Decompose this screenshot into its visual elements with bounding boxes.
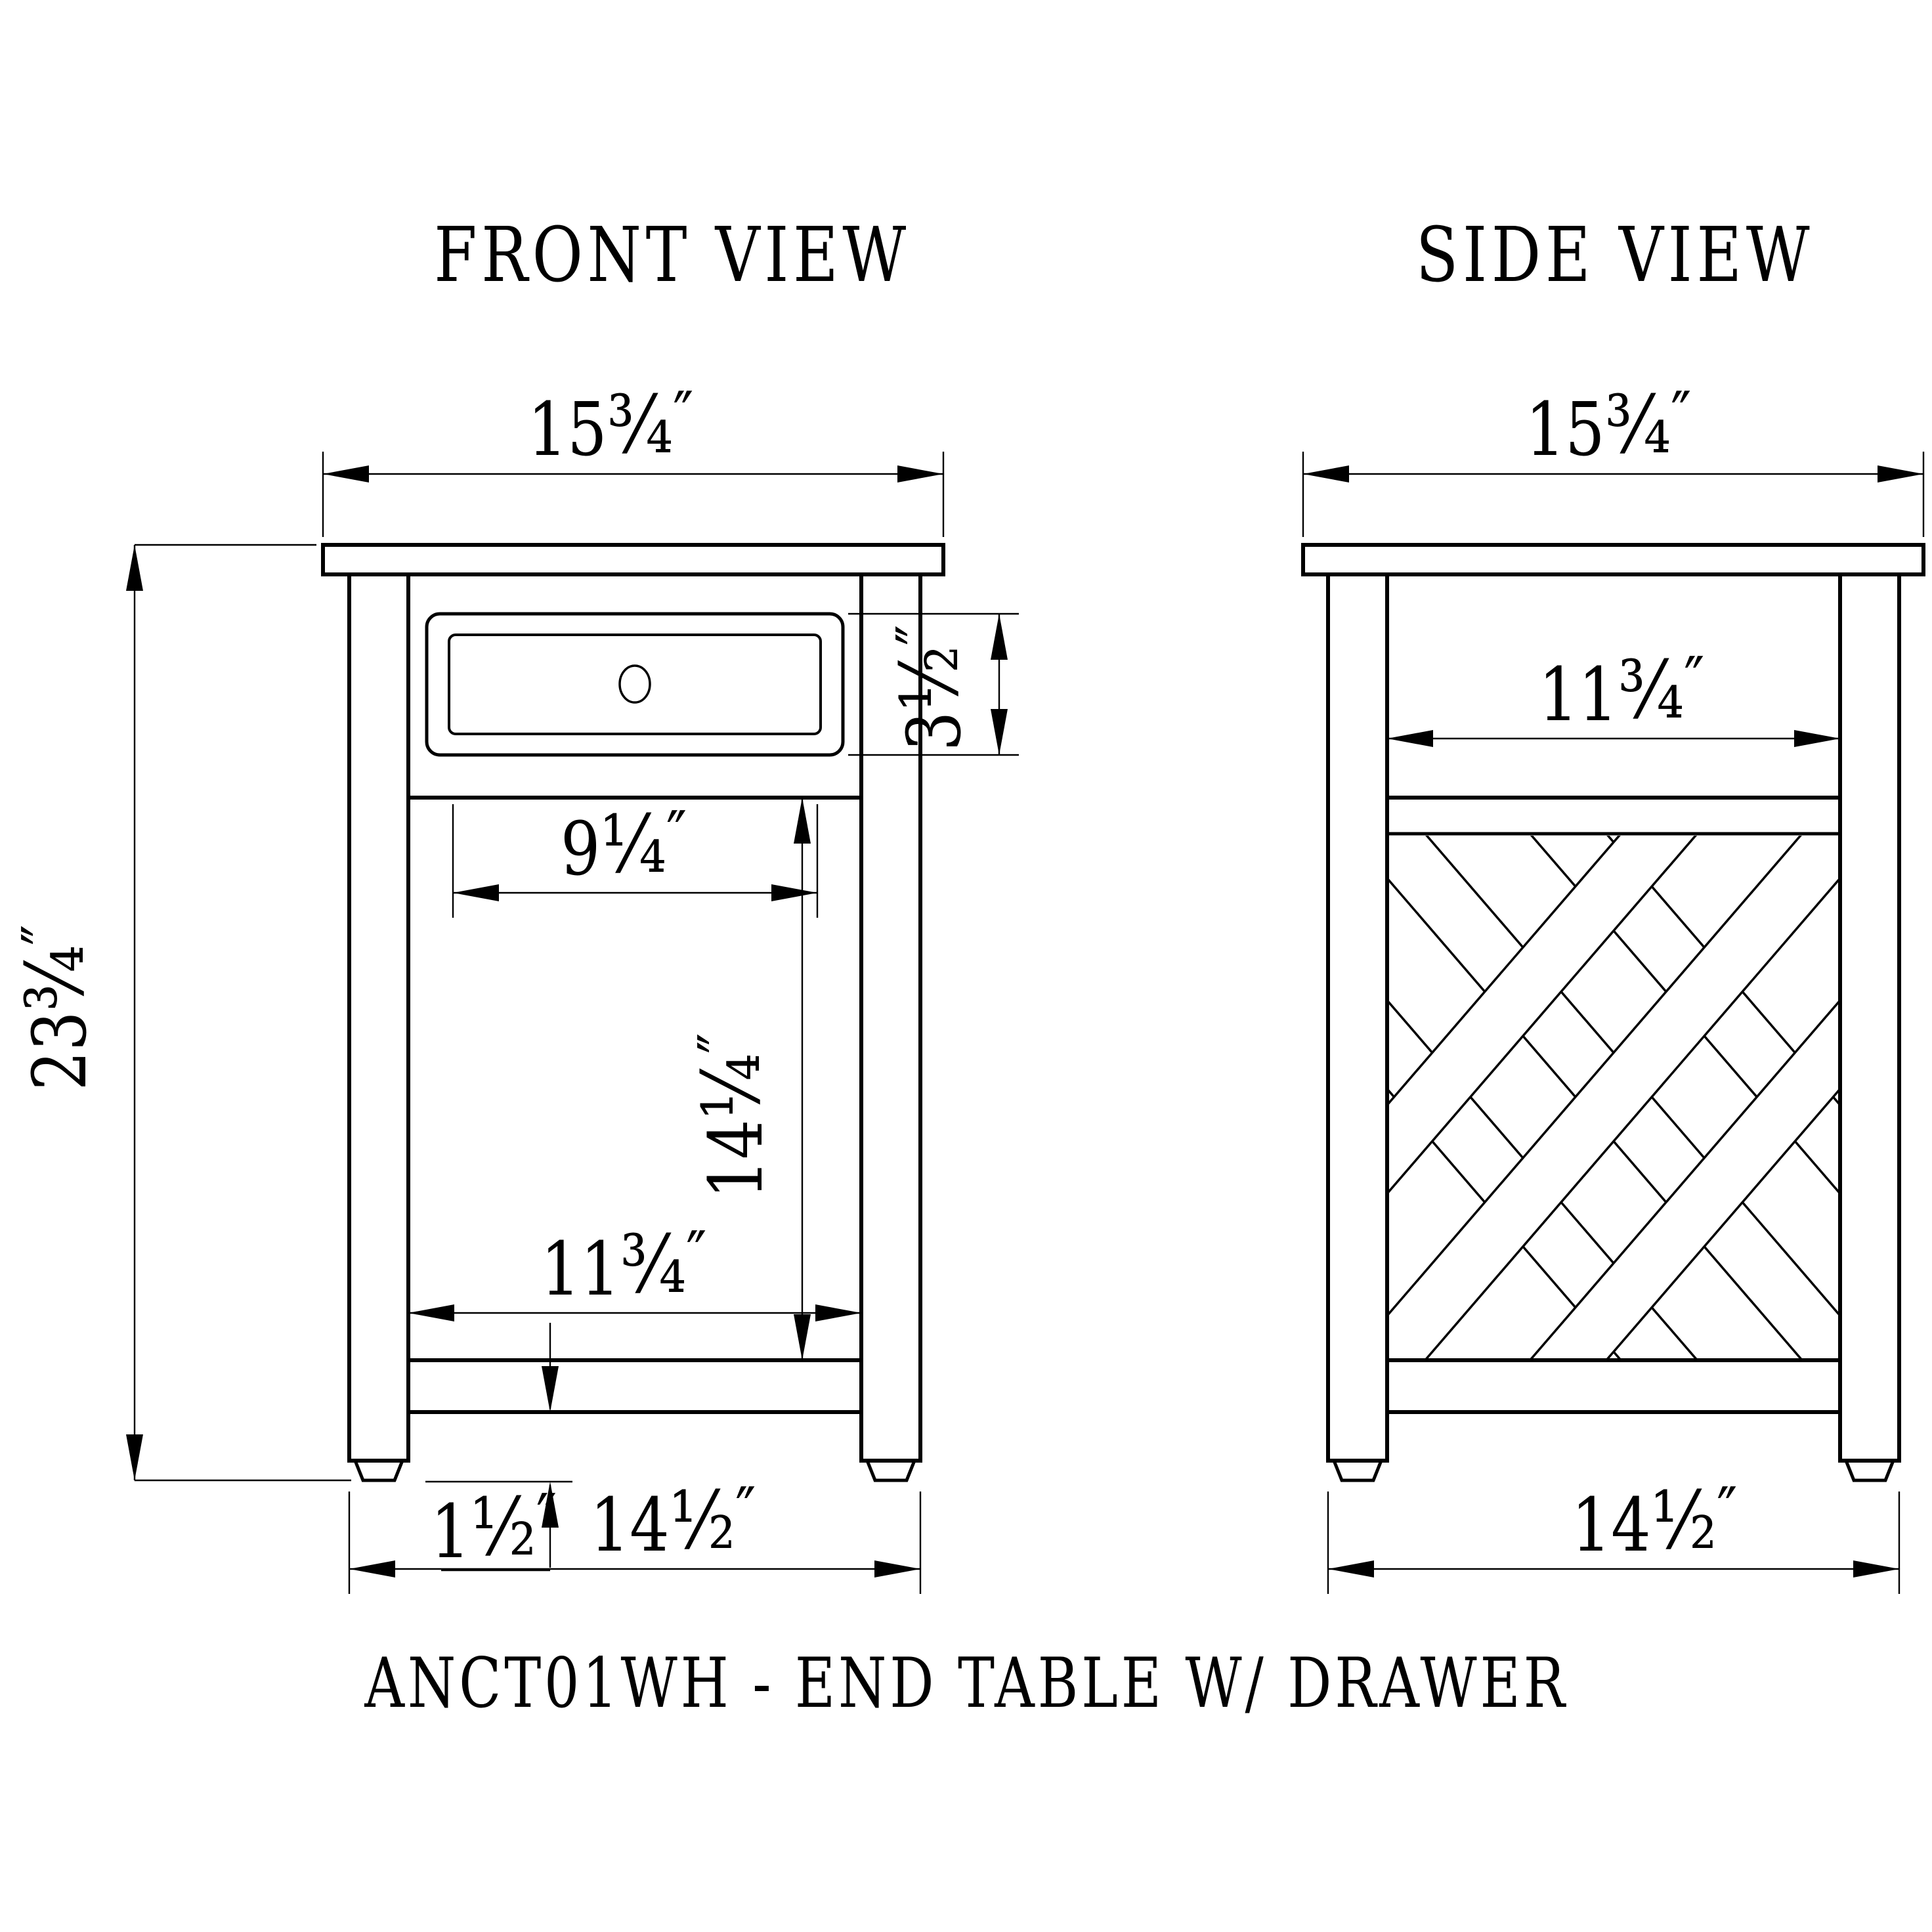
dim-front-inner-width: 11¾″ <box>408 1218 861 1321</box>
technical-drawing-page: FRONT VIEW 15¾″ 23¾″ <box>0 0 1932 1932</box>
dim-label: 14½″ <box>590 1474 756 1568</box>
dim-arrowhead <box>323 465 369 483</box>
dim-arrowhead <box>408 1304 454 1321</box>
dim-label: 14½″ <box>1572 1474 1738 1568</box>
dim-side-inner-depth: 11¾″ <box>1387 643 1840 747</box>
dim-arrowhead <box>1303 465 1349 483</box>
dim-front-overall-height: 23¾″ <box>9 545 351 1480</box>
front-left-foot <box>355 1461 402 1480</box>
dim-arrowhead <box>1853 1560 1899 1578</box>
side-left-foot <box>1334 1461 1381 1480</box>
dim-arrowhead <box>794 1314 811 1360</box>
dim-arrowhead <box>794 798 811 844</box>
dim-label: 11¾″ <box>1539 643 1705 738</box>
dim-arrowhead <box>1794 730 1840 747</box>
dim-label: 3½″ <box>883 625 977 751</box>
dim-arrowhead <box>771 884 817 901</box>
drawer-knob <box>620 666 650 702</box>
side-tabletop <box>1303 545 1923 574</box>
dim-side-top-depth: 15¾″ <box>1303 378 1923 537</box>
side-right-foot <box>1846 1461 1893 1480</box>
front-view-title: FRONT VIEW <box>434 211 911 299</box>
fretwork-panel <box>1340 785 1888 1408</box>
dim-label: 14¼″ <box>685 1033 779 1199</box>
dim-arrowhead <box>126 1434 143 1480</box>
dim-label: 15¾″ <box>528 378 694 473</box>
dim-arrowhead <box>991 614 1008 660</box>
dim-label: 1½″ <box>431 1480 557 1575</box>
dim-label: 15¾″ <box>1526 378 1692 473</box>
dim-arrowhead <box>815 1304 861 1321</box>
dim-label: 9¼″ <box>561 798 687 892</box>
dim-arrowhead <box>897 465 943 483</box>
side-view-title: SIDE VIEW <box>1416 211 1814 299</box>
dim-arrowhead <box>542 1366 559 1412</box>
front-right-foot <box>867 1461 914 1480</box>
dim-side-base-depth: 14½″ <box>1328 1474 1899 1594</box>
dim-label: 23¾″ <box>9 925 103 1091</box>
dim-front-top-width: 15¾″ <box>323 378 943 537</box>
front-view: FRONT VIEW 15¾″ 23¾″ <box>9 211 1019 1594</box>
dim-arrowhead <box>874 1560 920 1578</box>
dim-front-drawer-width: 9¼″ <box>453 798 817 918</box>
dim-arrowhead <box>1328 1560 1374 1578</box>
drawing-caption: ANCT01WH - END TABLE W/ DRAWER <box>364 1644 1568 1723</box>
dim-arrowhead <box>453 884 499 901</box>
dim-arrowhead <box>1387 730 1433 747</box>
dim-arrowhead <box>126 545 143 591</box>
dim-arrowhead <box>1878 465 1923 483</box>
dim-label: 11¾″ <box>541 1218 707 1312</box>
front-tabletop <box>323 545 943 574</box>
side-left-leg <box>1328 574 1387 1461</box>
side-right-leg <box>1840 574 1899 1461</box>
dim-arrowhead <box>991 709 1008 755</box>
front-left-leg <box>349 574 408 1461</box>
dim-arrowhead <box>349 1560 395 1578</box>
end-table-technical-drawing: FRONT VIEW 15¾″ 23¾″ <box>0 0 1932 1932</box>
side-view: SIDE VIEW 15¾″ <box>1303 211 1923 1594</box>
